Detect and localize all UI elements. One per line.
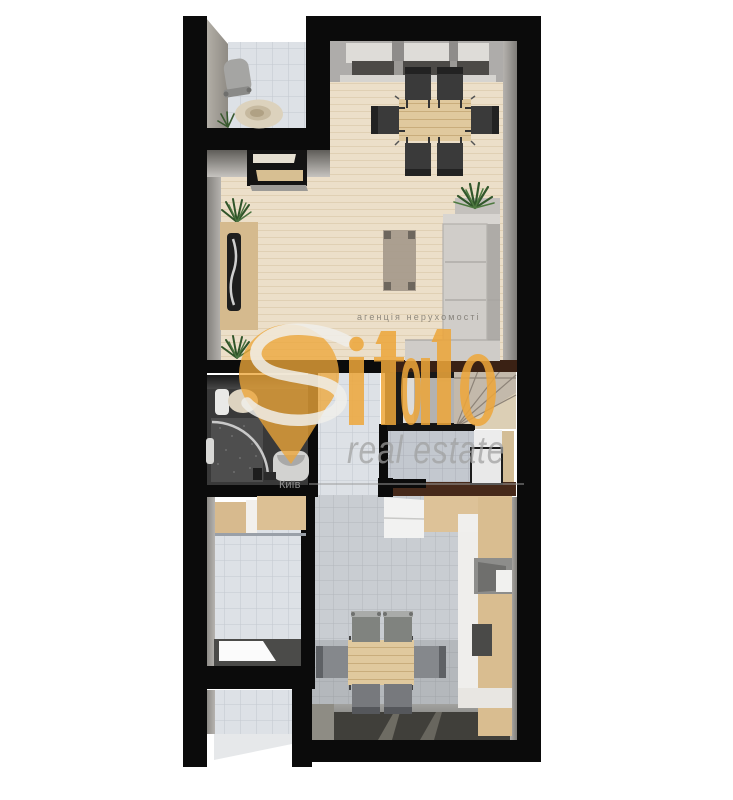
svg-text:Київ: Київ xyxy=(279,479,301,491)
svg-text:real estate: real estate xyxy=(347,428,505,472)
svg-text:агенція нерухомості: агенція нерухомості xyxy=(357,312,480,322)
